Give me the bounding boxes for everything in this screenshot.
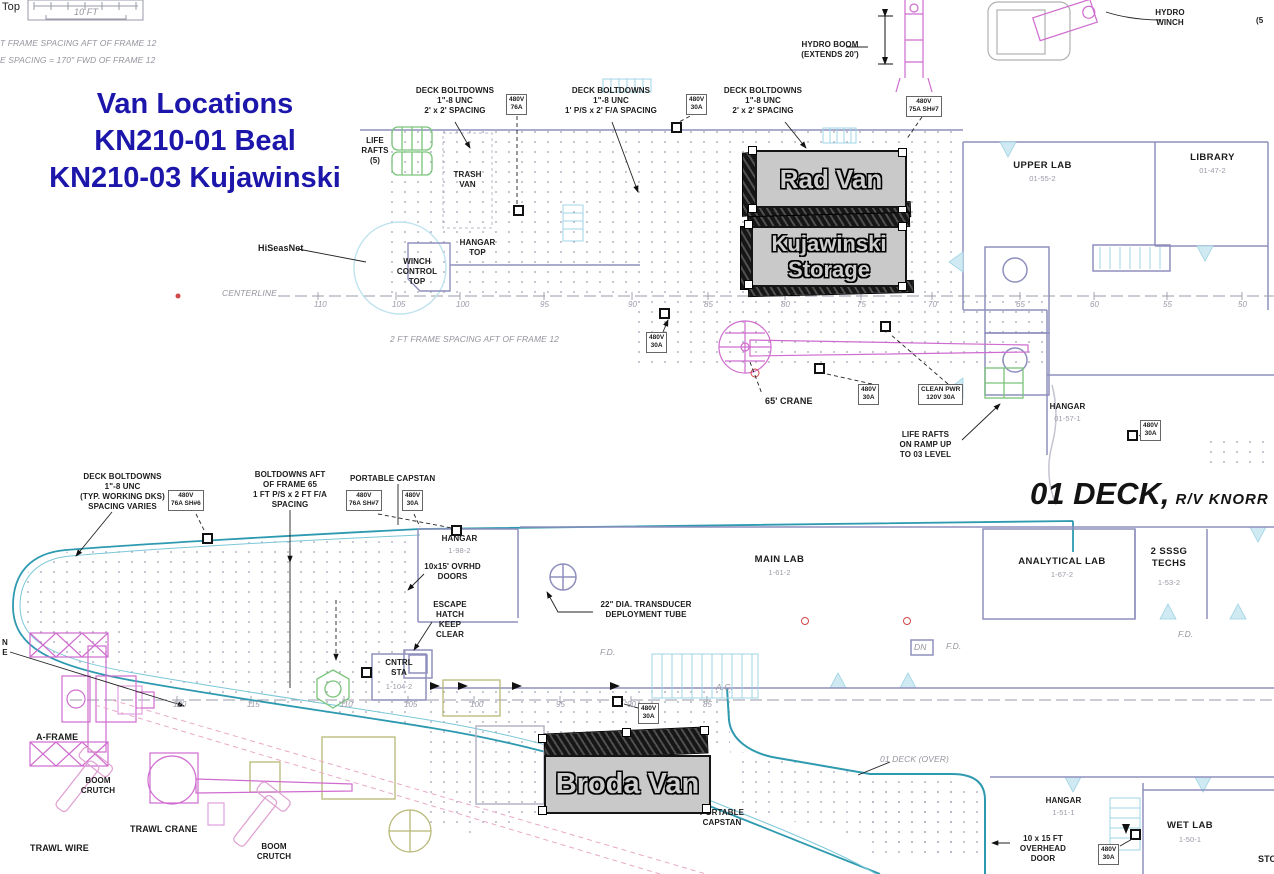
frame-number-upper: 60 — [1090, 300, 1099, 309]
label-trawl-wire: TRAWL WIRE — [30, 843, 89, 854]
power-label: 480V 76A — [506, 94, 527, 115]
label-ovrhd-doors: 10x15' OVRHD DOORS — [415, 562, 490, 582]
deck-title: 01 DECK,R/V KNORR — [1030, 476, 1269, 512]
frame-number-lower: 90 — [627, 700, 636, 709]
cut-label-right: (5 — [1256, 16, 1263, 26]
label-hangar-0157: HANGAR — [1040, 402, 1095, 412]
frame-number-upper: 55 — [1163, 300, 1172, 309]
label-wet-lab: WET LAB — [1155, 820, 1225, 832]
label-frame-spacing-upper: 2 FT FRAME SPACING AFT OF FRAME 12 — [390, 334, 559, 345]
power-label: CLEAN PWR 120V 30A — [918, 384, 963, 405]
label-library: LIBRARY — [1185, 152, 1240, 164]
label-deck-boltdowns-a: DECK BOLTDOWNS 1"-8 UNC 2' x 2' SPACING — [405, 86, 505, 116]
plan-label: 01-55-2 — [1005, 174, 1080, 183]
label-01-deck-over: 01 DECK (OVER) — [880, 754, 949, 765]
label-trash-van: TRASH VAN — [445, 170, 490, 190]
plan-label: 1-51-1 — [1036, 808, 1091, 817]
label-boom-crutch-2: BOOM CRUTCH — [248, 842, 300, 862]
power-label: 480V 30A — [686, 94, 707, 115]
selection-handle[interactable] — [538, 734, 547, 743]
label-deck-boltdowns-b: DECK BOLTDOWNS 1"-8 UNC 1' P/S x 2' F/A … — [550, 86, 672, 116]
plan-label: 1-104-2 — [376, 682, 422, 691]
frame-spacing-note-2: E SPACING = 170" FWD OF FRAME 12 — [0, 55, 155, 66]
power-label: 480V 75A SH#7 — [906, 96, 942, 117]
plan-label: 1-67-2 — [1008, 570, 1116, 579]
frame-number-upper: 105 — [392, 300, 405, 309]
kujawinski-body[interactable]: Kujawinski Storage — [751, 226, 907, 287]
plan-label: 1-98-2 — [432, 546, 487, 555]
frame-number-upper: 110 — [314, 300, 327, 309]
kujawinski-storage-box[interactable]: Kujawinski Storage — [740, 212, 916, 296]
selection-handle[interactable] — [744, 280, 753, 289]
frame-number-lower: 100 — [470, 700, 483, 709]
selection-handle[interactable] — [898, 148, 907, 157]
label-deck-boltdowns-c: DECK BOLTDOWNS 1"-8 UNC 2' x 2' SPACING — [713, 86, 813, 116]
drawing-title: Van Locations KN210-01 Beal KN210-03 Kuj… — [20, 86, 370, 197]
label-hydro-boom: HYDRO BOOM (EXTENDS 20') — [790, 40, 870, 60]
label-upper-lab: UPPER LAB — [1005, 160, 1080, 172]
deck-title-sub: R/V KNORR — [1176, 491, 1269, 508]
rad-van-label: Rad Van — [780, 166, 883, 192]
plan-label: 1-61-2 — [742, 568, 817, 577]
frame-number-upper: 65 — [1016, 300, 1025, 309]
label-hydro-winch: HYDRO WINCH — [1145, 8, 1195, 28]
selection-handle[interactable] — [702, 804, 711, 813]
power-label: 480V 30A — [1140, 420, 1161, 441]
frame-number-lower: 95 — [556, 700, 565, 709]
deck-plan-page: Van Locations KN210-01 Beal KN210-03 Kuj… — [0, 0, 1274, 874]
label-65ft-crane: 65' CRANE — [765, 396, 813, 407]
label-escape-hatch: ESCAPE HATCH KEEP CLEAR — [425, 600, 475, 640]
frame-number-upper: 75 — [857, 300, 866, 309]
frame-number-upper: 80 — [781, 300, 790, 309]
broda-van-body[interactable]: Broda Van — [544, 755, 711, 814]
selection-handle[interactable] — [744, 220, 753, 229]
label-hangar-top: HANGAR TOP — [450, 238, 505, 258]
kujawinski-label: Kujawinski Storage — [772, 231, 887, 282]
label-overhead-door: 10 x 15 FT OVERHEAD DOOR — [1012, 834, 1074, 864]
plan-label: 1-53-2 — [1145, 578, 1193, 587]
frame-number-upper: 95 — [540, 300, 549, 309]
label-deck-boltdowns-lower: DECK BOLTDOWNS 1"-8 UNC (TYP. WORKING DK… — [70, 472, 175, 512]
label-hiseasnet: HiSeasNet — [258, 243, 303, 254]
label-ac: A.C. — [716, 682, 733, 693]
title-line-1: Van Locations — [20, 86, 370, 123]
selection-handle[interactable] — [898, 282, 907, 291]
power-label: 480V 76A SH#6 — [168, 490, 204, 511]
label-boltdowns-aft: BOLTDOWNS AFT OF FRAME 65 1 FT P/S x 2 F… — [235, 470, 345, 510]
plan-label: 01-57-1 — [1040, 414, 1095, 423]
selection-handle[interactable] — [622, 728, 631, 737]
power-label: 480V 30A — [858, 384, 879, 405]
rad-van-body[interactable]: Rad Van — [755, 150, 907, 208]
selection-handle[interactable] — [538, 806, 547, 815]
label-boom-crutch-1: BOOM CRUTCH — [72, 776, 124, 796]
broda-van-label: Broda Van — [556, 770, 699, 799]
frame-number-lower: 120 — [173, 700, 186, 709]
plan-label: DN — [914, 642, 926, 653]
plan-label: F.D. — [600, 647, 615, 658]
cut-label-left: N E — [0, 638, 10, 658]
label-trawl-crane: TRAWL CRANE — [130, 824, 197, 835]
frame-number-upper: 90 — [628, 300, 637, 309]
frame-number-upper: 85 — [704, 300, 713, 309]
label-sssg-techs: 2 SSSG TECHS — [1145, 546, 1193, 570]
label-a-frame: A-FRAME — [36, 732, 78, 743]
selection-handle[interactable] — [898, 222, 907, 231]
plan-label: 1-50-1 — [1155, 835, 1225, 844]
label-life-rafts: LIFE RAFTS (5) — [355, 136, 395, 166]
label-cntrl-sta: CNTRL STA — [378, 658, 420, 678]
frame-spacing-note-1: T FRAME SPACING AFT OF FRAME 12 — [0, 38, 156, 49]
frame-number-lower: 110 — [340, 700, 353, 709]
plan-label: 01-47-2 — [1185, 166, 1240, 175]
frame-number-upper: 50 — [1238, 300, 1247, 309]
label-centerline: CENTERLINE — [222, 288, 277, 299]
power-label: 480V 30A — [638, 703, 659, 724]
frame-number-upper: 70 — [928, 300, 937, 309]
label-hangar-1511: HANGAR — [1036, 796, 1091, 806]
power-label: 480V 30A — [646, 332, 667, 353]
label-transducer-tube: 22" DIA. TRANSDUCER DEPLOYMENT TUBE — [592, 600, 700, 620]
plan-label: F.D. — [946, 641, 961, 652]
selection-handle[interactable] — [748, 146, 757, 155]
broda-van-box[interactable]: Broda Van — [538, 722, 714, 816]
frame-number-upper: 100 — [456, 300, 469, 309]
label-hangar-1982: HANGAR — [432, 534, 487, 544]
corner-label-top: Top — [2, 1, 20, 15]
power-label: 480V 30A — [1098, 844, 1119, 865]
frame-number-lower: 85 — [703, 700, 712, 709]
power-label: 480V 76A SH#7 — [346, 490, 382, 511]
power-label: 480V 30A — [402, 490, 423, 511]
frame-number-lower: 105 — [404, 700, 417, 709]
label-main-lab: MAIN LAB — [742, 554, 817, 566]
title-line-2: KN210-01 Beal — [20, 123, 370, 160]
label-analytical-lab: ANALYTICAL LAB — [1008, 556, 1116, 568]
label-portable-capstan-top: PORTABLE CAPSTAN — [350, 474, 435, 484]
scale-bar-label: 10 FT — [56, 7, 116, 18]
selection-handle[interactable] — [700, 726, 709, 735]
frame-number-lower: 115 — [247, 700, 260, 709]
label-winch-control-top: WINCH CONTROL TOP — [392, 257, 442, 287]
deck-title-main: 01 DECK, — [1030, 476, 1170, 511]
title-line-3: KN210-03 Kujawinski — [20, 160, 370, 197]
label-life-rafts-ramp: LIFE RAFTS ON RAMP UP TO 03 LEVEL — [888, 430, 963, 460]
plan-label: F.D. — [1178, 629, 1193, 640]
cut-label-sto: STO — [1258, 854, 1274, 865]
